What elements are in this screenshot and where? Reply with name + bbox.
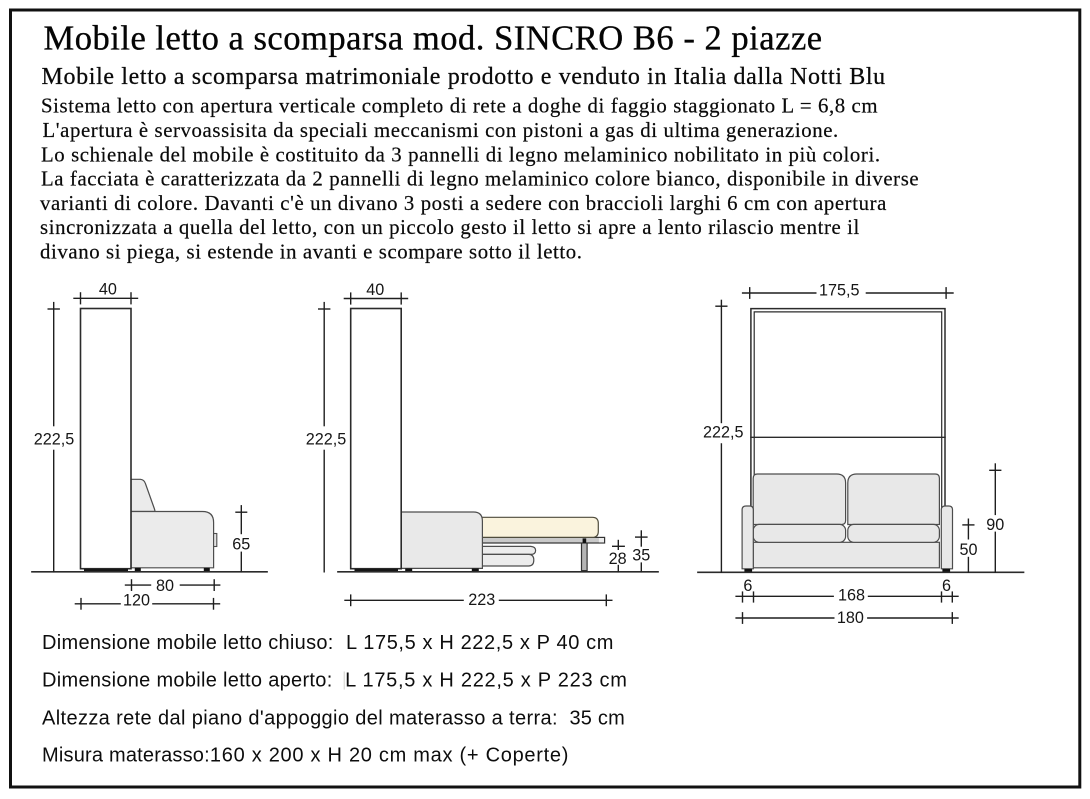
- svg-text:222,5: 222,5: [34, 431, 75, 449]
- svg-text:90: 90: [986, 516, 1004, 534]
- svg-text:Dimensione mobile letto chiuso: Dimensione mobile letto chiuso: L 175,5 …: [42, 632, 614, 654]
- svg-text:168: 168: [838, 587, 865, 605]
- svg-text:6: 6: [743, 577, 752, 595]
- svg-text:40: 40: [366, 281, 384, 299]
- svg-text:6: 6: [942, 577, 951, 595]
- svg-text:Dimensione mobile letto aperto: Dimensione mobile letto aperto: L 175,5 …: [42, 670, 628, 692]
- svg-text:Mobile letto a scomparsa mod.: Mobile letto a scomparsa mod. SINCRO B6 …: [44, 19, 823, 57]
- svg-text:varianti di colore. Davanti c': varianti di colore. Davanti c'è un divan…: [40, 192, 887, 215]
- svg-text:50: 50: [959, 541, 977, 559]
- svg-text:35: 35: [632, 547, 650, 565]
- svg-text:Sistema letto con apertura ver: Sistema letto con apertura verticale com…: [41, 95, 878, 118]
- svg-text:65: 65: [232, 535, 250, 553]
- svg-text:La facciata è caratterizzata d: La facciata è caratterizzata da 2 pannel…: [41, 168, 919, 191]
- svg-text:120: 120: [123, 592, 150, 610]
- svg-text:28: 28: [609, 550, 627, 568]
- svg-text:Altezza rete dal piano d'appog: Altezza rete dal piano d'appoggio del ma…: [42, 708, 625, 730]
- svg-text:175,5: 175,5: [819, 282, 860, 300]
- svg-text:Mobile letto a scomparsa matri: Mobile letto a scomparsa matrimoniale pr…: [42, 64, 886, 90]
- svg-text:divano si piega, si estende in: divano si piega, si estende in avanti e …: [40, 241, 583, 264]
- svg-text:Lo schienale del mobile è cost: Lo schienale del mobile è costituito da …: [41, 143, 881, 166]
- svg-text:80: 80: [156, 577, 174, 595]
- svg-text:sincronizzata a quella del let: sincronizzata a quella del letto, con un…: [40, 216, 860, 239]
- svg-text:40: 40: [99, 280, 117, 298]
- svg-text:180: 180: [837, 609, 864, 627]
- svg-text:223: 223: [468, 591, 495, 609]
- svg-text:222,5: 222,5: [306, 431, 347, 449]
- svg-text:222,5: 222,5: [703, 423, 744, 441]
- svg-text:L'apertura è servoassisita da: L'apertura è servoassisita da speciali m…: [43, 119, 839, 142]
- svg-text:Misura materasso:160 x 200 x H: Misura materasso:160 x 200 x H 20 cm max…: [42, 744, 569, 766]
